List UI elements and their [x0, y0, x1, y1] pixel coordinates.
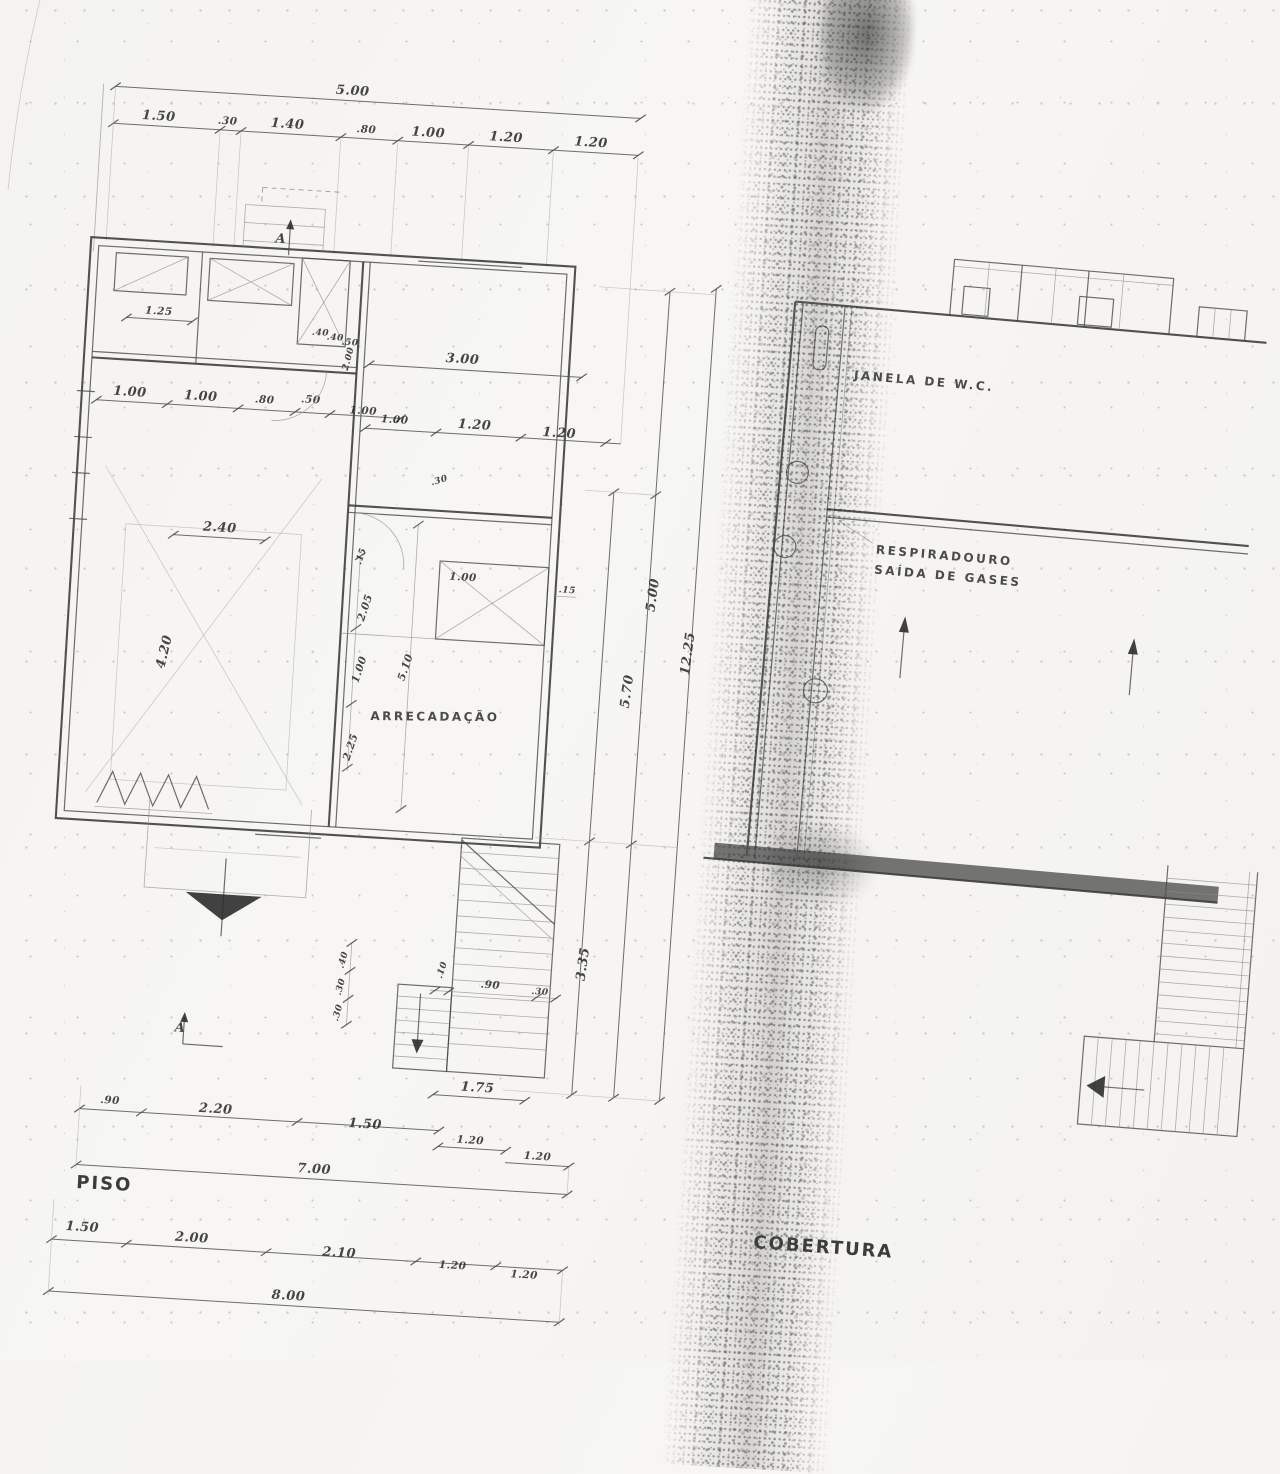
dim-label: 1.20	[438, 1259, 466, 1273]
page-edge-curl	[8, 0, 40, 190]
cobertura-flow-arrows	[895, 616, 1139, 699]
dim-label: .50	[301, 393, 322, 406]
dim-label: 5.70	[618, 674, 638, 709]
dim-label: 1.00	[349, 654, 369, 684]
dim-label: .30	[430, 474, 450, 489]
dim-label: 1.25	[145, 305, 173, 319]
piso-right-dimensions: 5.00 12.25 5.70 3.35	[503, 274, 723, 1105]
dim-label: .80	[356, 123, 377, 136]
dim-label: 2.25	[340, 732, 360, 763]
piso-entry-steps	[243, 187, 342, 253]
dim-label: .90	[100, 1094, 121, 1107]
piso-porch	[144, 799, 311, 898]
dim-label: 3.35	[574, 946, 594, 981]
piso-stair-dims: .10 .90 .30 1.75 .40 .30 .30	[326, 938, 563, 1107]
dim-label: 1.20	[542, 425, 577, 442]
dim-label: .30	[331, 1003, 345, 1022]
dim-label: 7.00	[297, 1161, 332, 1178]
dim-label: 2.10	[321, 1245, 357, 1262]
dim-label: 2.00	[341, 346, 357, 373]
dim-label: 12.25	[678, 631, 699, 676]
dim-label: 1.75	[460, 1079, 495, 1096]
dim-label: .40	[337, 950, 351, 969]
dim-label: 2.00	[174, 1230, 210, 1247]
dim-label: .30	[217, 115, 238, 128]
dim-label: 1.20	[456, 1134, 484, 1148]
dim-label: 1.00	[411, 124, 446, 141]
dim-label: 8.00	[271, 1288, 306, 1305]
dim-label: 5.10	[396, 652, 416, 682]
dim-label: .30	[334, 977, 348, 996]
dim-label: 3.00	[445, 351, 480, 368]
piso-title: PISO	[76, 1172, 133, 1196]
dim-label: 1.00	[349, 404, 377, 418]
dim-label: 1.50	[142, 108, 177, 125]
dim-label: 1.20	[574, 134, 609, 151]
cobertura-labels: JANELA DE W.C. RESPIRADOURO SAÍDA DE GAS…	[836, 368, 1039, 589]
dim-label: .90	[480, 979, 501, 992]
north-arrow	[183, 856, 264, 939]
wc-window-label: JANELA DE W.C.	[853, 368, 995, 394]
piso-vertical-dims: .15 2.05 1.00 5.10 2.25	[337, 517, 424, 814]
dim-label: .15	[558, 585, 576, 596]
dim-label: 1.00	[449, 571, 477, 585]
dim-label: 1.40	[270, 116, 305, 133]
dim-label: 4.20	[153, 634, 175, 670]
dim-label: .15	[354, 547, 369, 566]
dim-label: .10	[435, 960, 450, 980]
dim-label: 1.20	[489, 129, 524, 146]
piso-plan: 5.00 1.50 .30 1.40 .80 1.00 1.20 1.20	[51, 68, 647, 855]
dim-label: 2.40	[202, 519, 238, 536]
dim-label: 1.50	[65, 1219, 100, 1236]
dim-label: 1.20	[510, 1268, 538, 1282]
floor-plan-scan: 5.00 1.50 .30 1.40 .80 1.00 1.20 1.20	[0, 0, 1280, 1361]
piso-room-dimensions: 3.00 1.00 1.20 1.20	[360, 258, 631, 448]
dim-label: 1.50	[348, 1116, 383, 1133]
dim-label: 2.20	[197, 1101, 233, 1118]
dim-label: 1.20	[523, 1150, 551, 1164]
piso-staircase	[393, 834, 560, 1078]
dim-label: 1.00	[381, 413, 409, 427]
dim-label: 5.00	[335, 83, 370, 100]
dim-label: .80	[254, 393, 275, 406]
section-label: A	[273, 231, 286, 247]
dim-label: .30	[531, 987, 549, 998]
cobertura-title: COBERTURA	[753, 1232, 894, 1263]
dim-label: 1.00	[183, 388, 218, 405]
cobertura-stairs	[1077, 860, 1257, 1137]
dim-label: 5.00	[644, 577, 664, 612]
dim-label: 1.00	[113, 384, 148, 401]
room-label-arrecadacao: ARRECADAÇÃO	[370, 708, 499, 724]
section-marker-a-bottom: A	[172, 1011, 225, 1046]
cobertura-plan: JANELA DE W.C. RESPIRADOURO SAÍDA DE GAS…	[703, 242, 1271, 903]
piso-tiny-dims: .40 .40 .50 2.00 .30	[303, 328, 458, 489]
piso-bottom-dimensions: .90 2.20 1.50 1.20 1.20 7.00 1.50 2.00 2…	[43, 1084, 577, 1326]
dim-label: 1.20	[457, 417, 492, 434]
